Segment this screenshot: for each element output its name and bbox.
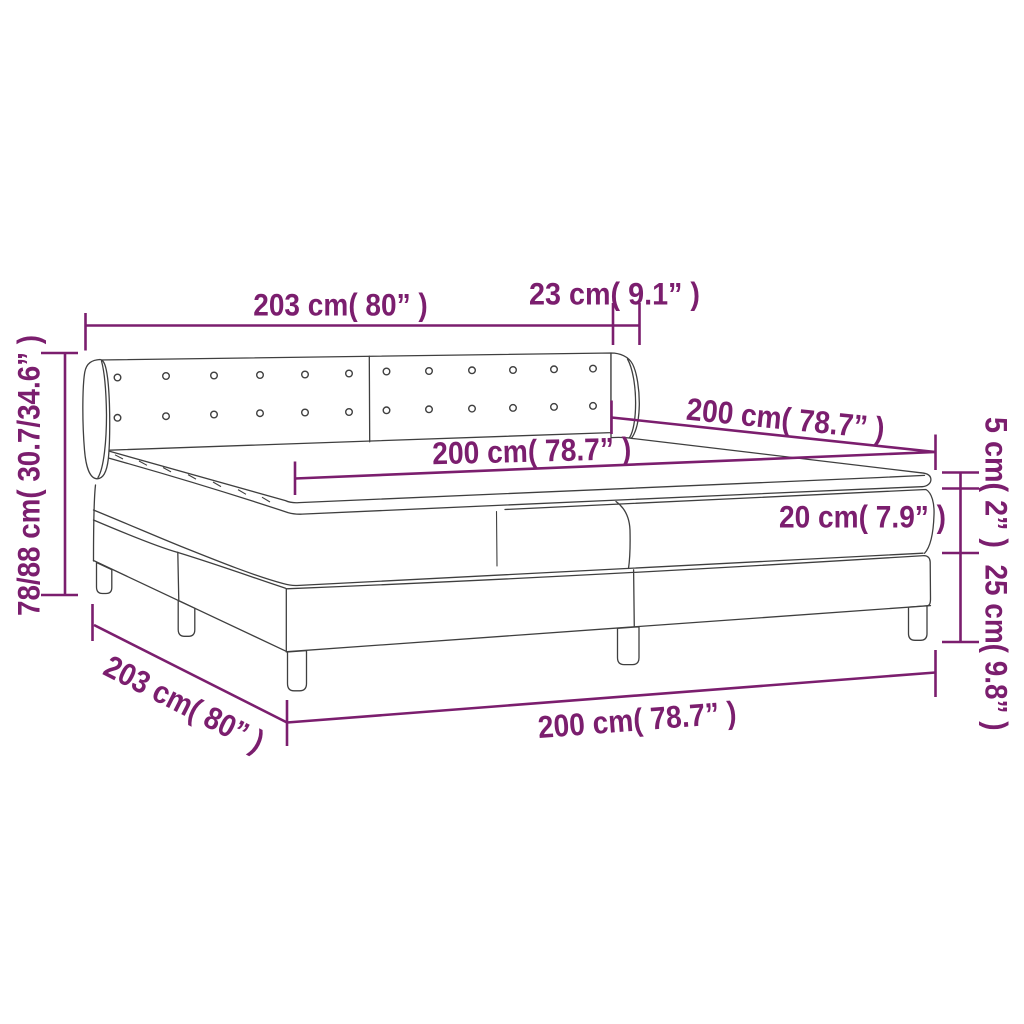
svg-text:25 cm( 9.8” ): 25 cm( 9.8” ) bbox=[979, 565, 1015, 731]
svg-text:23 cm( 9.1” ): 23 cm( 9.1” ) bbox=[529, 276, 700, 312]
svg-text:20 cm( 7.9” ): 20 cm( 7.9” ) bbox=[779, 499, 946, 535]
svg-text:5 cm( 2” ): 5 cm( 2” ) bbox=[979, 417, 1015, 548]
svg-text:203 cm( 80” ): 203 cm( 80” ) bbox=[253, 287, 428, 323]
svg-text:200 cm( 78.7” ): 200 cm( 78.7” ) bbox=[432, 430, 632, 471]
svg-text:78/88 cm( 30.7/34.6” ): 78/88 cm( 30.7/34.6” ) bbox=[11, 335, 47, 616]
